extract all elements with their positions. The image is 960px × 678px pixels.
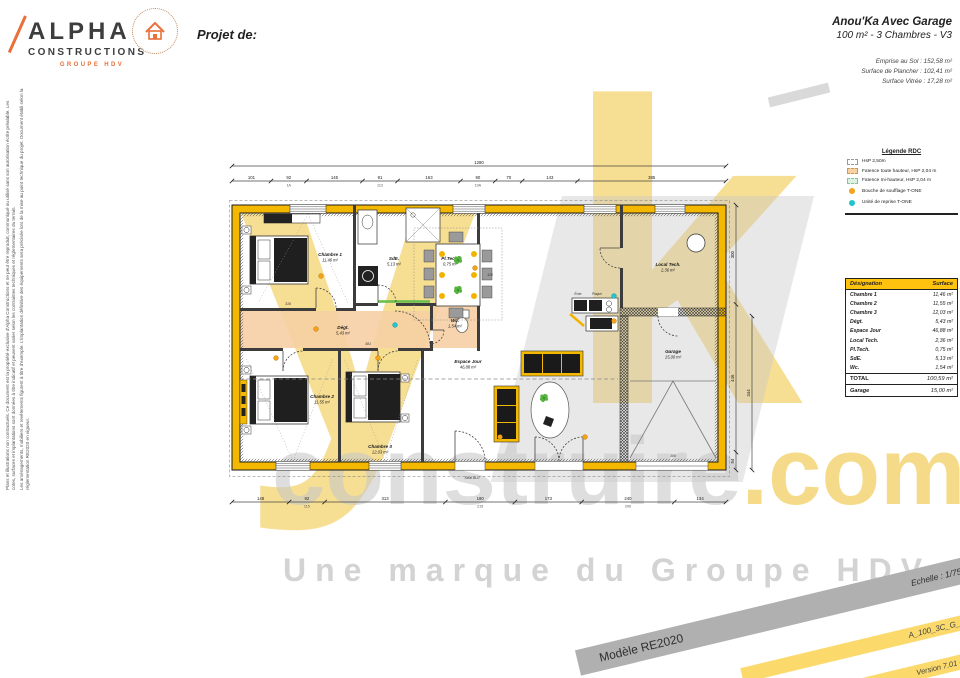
room-name: Chambre 2 bbox=[850, 301, 877, 307]
svg-text:54: 54 bbox=[730, 458, 735, 463]
table-row: Chambre 1 11,46 m² bbox=[846, 290, 957, 299]
svg-text:113: 113 bbox=[377, 184, 383, 188]
room-surface: 5,43 m² bbox=[935, 319, 953, 325]
svg-text:91: 91 bbox=[378, 175, 383, 180]
svg-text:Chambre 3: Chambre 3 bbox=[368, 444, 392, 449]
table-row: SdE. 5,13 m² bbox=[846, 354, 957, 363]
svg-text:Wc.: Wc. bbox=[451, 318, 459, 323]
surface-table: Désignation Surface Chambre 1 11,46 m² C… bbox=[845, 278, 958, 397]
surface-metrics: Emprise au Sol : 152,58 m²Surface de Pla… bbox=[832, 57, 952, 86]
svg-text:15,00 m²: 15,00 m² bbox=[665, 355, 682, 360]
watermark-tagline: Une marque du Groupe HDV bbox=[283, 552, 931, 589]
table-row: Chambre 3 12,03 m² bbox=[846, 308, 957, 317]
legend-item-label: Unité de reprise T-ONE bbox=[862, 200, 912, 205]
svg-text:300: 300 bbox=[730, 250, 735, 258]
svg-text:145: 145 bbox=[331, 175, 339, 180]
svg-text:143: 143 bbox=[546, 175, 554, 180]
svg-text:115: 115 bbox=[304, 505, 310, 509]
table-row: Dégt. 5,43 m² bbox=[846, 318, 957, 327]
svg-text:381: 381 bbox=[365, 342, 371, 346]
table-row: Local Tech. 2,36 m² bbox=[846, 336, 957, 345]
logo-slash-icon bbox=[8, 15, 27, 53]
svg-text:SdE.: SdE. bbox=[389, 256, 399, 261]
room-surface: 46,88 m² bbox=[933, 328, 953, 334]
svg-text:101: 101 bbox=[248, 175, 256, 180]
garage-value: 15,00 m² bbox=[931, 388, 953, 394]
table-row: Chambre 2 11,55 m² bbox=[846, 299, 957, 308]
project-label: Projet de: bbox=[197, 27, 257, 42]
svg-text:70: 70 bbox=[506, 175, 511, 180]
svg-text:200: 200 bbox=[625, 505, 631, 509]
legal-line-1: Plans et illustrations non contractuels.… bbox=[5, 88, 17, 490]
room-name: Dégt. bbox=[850, 319, 863, 325]
table-row: Wc. 1,54 m² bbox=[846, 364, 957, 373]
svg-text:446: 446 bbox=[730, 374, 735, 382]
svg-text:Chambre 1: Chambre 1 bbox=[318, 252, 342, 257]
svg-text:173: 173 bbox=[545, 496, 553, 501]
svg-text:46,88 m²: 46,88 m² bbox=[460, 365, 477, 370]
scale-label: Echelle : 1/75 bbox=[910, 566, 960, 588]
room-name: SdE. bbox=[850, 356, 862, 362]
svg-text:240: 240 bbox=[624, 496, 632, 501]
legend-item-label: Faïence toute hauteur, HsP 2,04 m bbox=[862, 169, 936, 174]
tiled-floors bbox=[240, 306, 477, 348]
surface-table-header-surface: Surface bbox=[932, 281, 953, 287]
svg-text:316: 316 bbox=[285, 302, 291, 306]
svg-text:215: 215 bbox=[477, 505, 483, 509]
svg-text:1280: 1280 bbox=[474, 160, 484, 165]
room-surface: 12,03 m² bbox=[933, 310, 953, 316]
svg-text:Chambre 2: Chambre 2 bbox=[310, 394, 334, 399]
surface-table-header: Désignation Surface bbox=[846, 279, 957, 290]
logo-stamp-icon bbox=[132, 8, 178, 54]
room-surface: 2,36 m² bbox=[935, 338, 953, 344]
logo-constructions-text: CONSTRUCTIONS bbox=[28, 47, 198, 58]
legend-swatch-icon bbox=[847, 187, 858, 195]
garage-separation-walls bbox=[620, 308, 726, 462]
svg-text:11,46 m²: 11,46 m² bbox=[322, 258, 338, 263]
floor-plan: 1280101921A145911131639010A7014338514892… bbox=[228, 148, 768, 523]
svg-text:Seuil ALU: Seuil ALU bbox=[465, 476, 481, 480]
faience-strip bbox=[378, 300, 430, 303]
room-surface: 0,75 m² bbox=[935, 347, 953, 353]
legend-item: Faïence mi-hauteur, HsP 2,04 m bbox=[847, 178, 956, 184]
table-row: Espace Jour 46,88 m² bbox=[846, 327, 957, 336]
table-row-total: TOTAL 100,59 m² bbox=[846, 373, 957, 385]
svg-text:5,43 m²: 5,43 m² bbox=[336, 331, 351, 336]
svg-text:344: 344 bbox=[746, 389, 751, 397]
svg-text:300: 300 bbox=[670, 454, 677, 458]
plan-reference: A_100_3C_G_V3 bbox=[907, 616, 960, 639]
svg-text:Local Tech.: Local Tech. bbox=[655, 262, 680, 267]
legend-item-label: Bouche de soufflage T-ONE bbox=[862, 189, 922, 194]
svg-text:Évier: Évier bbox=[574, 291, 582, 296]
logo-brand-line: ALPHA bbox=[28, 18, 198, 46]
legend-swatch-icon bbox=[847, 159, 858, 165]
plan-sheet: y k construire.com Une marque du Groupe … bbox=[0, 0, 960, 678]
garage-label: Garage bbox=[850, 388, 869, 394]
model-code: Modèle RE2020 bbox=[598, 631, 685, 665]
room-name: Chambre 3 bbox=[850, 310, 877, 316]
legend-box: Légende RDC HsP 2,50m Faïence toute haut… bbox=[845, 147, 958, 215]
svg-text:92: 92 bbox=[304, 496, 309, 501]
svg-text:134: 134 bbox=[697, 496, 705, 501]
legend-item-label: Faïence mi-hauteur, HsP 2,04 m bbox=[862, 178, 931, 183]
total-value: 100,59 m² bbox=[927, 376, 953, 382]
svg-text:5,13 m²: 5,13 m² bbox=[387, 262, 402, 267]
model-subtitle: 100 m² - 3 Chambres - V3 bbox=[832, 30, 952, 41]
svg-text:110: 110 bbox=[487, 273, 493, 277]
room-surface: 5,13 m² bbox=[935, 356, 953, 362]
svg-text:2,36 m²: 2,36 m² bbox=[660, 268, 676, 273]
floor-plan-svg: 1280101921A145911131639010A7014338514892… bbox=[228, 148, 768, 523]
svg-text:90: 90 bbox=[475, 175, 480, 180]
svg-text:1A: 1A bbox=[286, 184, 291, 188]
svg-text:Garage: Garage bbox=[665, 349, 681, 354]
plan-version: Version 7.01 - Mars 2023 bbox=[915, 649, 960, 677]
surface-metric-line: Emprise au Sol : 152,58 m² bbox=[832, 57, 952, 67]
title-block: Anou'Ka Avec Garage 100 m² - 3 Chambres … bbox=[832, 16, 952, 86]
legend-item: Unité de reprise T-ONE bbox=[847, 199, 956, 207]
model-title: Anou'Ka Avec Garage bbox=[832, 16, 952, 28]
logo-group-text: GROUPE HDV bbox=[28, 62, 156, 68]
legend-item-label: HsP 2,50m bbox=[862, 159, 886, 164]
svg-text:385: 385 bbox=[648, 175, 656, 180]
room-surface: 11,46 m² bbox=[933, 292, 953, 298]
surface-metric-line: Surface de Plancher : 102,41 m² bbox=[832, 67, 952, 77]
house-icon bbox=[142, 18, 168, 44]
surface-table-rows: Chambre 1 11,46 m² Chambre 2 11,55 m² Ch… bbox=[846, 290, 957, 373]
room-name: Espace Jour bbox=[850, 328, 881, 334]
logo-brand-text: ALPHA bbox=[28, 18, 131, 45]
legend-swatch-icon bbox=[847, 178, 858, 184]
svg-text:10A: 10A bbox=[475, 184, 482, 188]
company-logo: ALPHA CONSTRUCTIONS GROUPE HDV bbox=[28, 18, 198, 68]
garage-door-lines bbox=[630, 381, 716, 458]
legend-swatch-icon bbox=[847, 199, 858, 207]
total-label: TOTAL bbox=[850, 376, 869, 382]
room-surface: 11,55 m² bbox=[933, 301, 953, 307]
legend-title: Légende RDC bbox=[847, 149, 956, 155]
legal-fine-print: Plans et illustrations non contractuels.… bbox=[5, 88, 32, 490]
table-row-garage: Garage 15,00 m² bbox=[846, 384, 957, 396]
svg-text:180: 180 bbox=[477, 496, 485, 501]
legend-items: HsP 2,50m Faïence toute hauteur, HsP 2,0… bbox=[847, 159, 956, 207]
svg-text:163: 163 bbox=[425, 175, 433, 180]
legend-swatch-icon bbox=[847, 168, 858, 174]
watermark-gray-sliver bbox=[768, 83, 831, 108]
room-surface: 1,54 m² bbox=[935, 365, 953, 371]
watermark-com-text: .com bbox=[741, 418, 960, 525]
room-name: Chambre 1 bbox=[850, 292, 877, 298]
svg-text:Dégt.: Dégt. bbox=[337, 325, 348, 330]
svg-text:92: 92 bbox=[286, 175, 291, 180]
legend-item: HsP 2,50m bbox=[847, 159, 956, 165]
room-name: Wc. bbox=[850, 365, 859, 371]
table-row: Pl.Tech. 0,75 m² bbox=[846, 345, 957, 354]
svg-text:11,55 m²: 11,55 m² bbox=[314, 400, 330, 405]
surface-table-header-designation: Désignation bbox=[850, 281, 882, 287]
room-name: Local Tech. bbox=[850, 338, 878, 344]
footer-band-model: Modèle RE2020 Echelle : 1/75 bbox=[575, 550, 960, 676]
surface-metric-line: Surface Vitrée : 17,28 m² bbox=[832, 77, 952, 87]
svg-text:12,03 m²: 12,03 m² bbox=[372, 450, 389, 455]
legend-item: Faïence toute hauteur, HsP 2,04 m bbox=[847, 168, 956, 174]
room-name: Pl.Tech. bbox=[850, 347, 870, 353]
svg-text:Plaque: Plaque bbox=[592, 292, 602, 296]
svg-text:313: 313 bbox=[381, 496, 389, 501]
svg-text:1,54 m²: 1,54 m² bbox=[448, 324, 463, 329]
legend-item: Bouche de soufflage T-ONE bbox=[847, 187, 956, 195]
svg-text:Espace Jour: Espace Jour bbox=[454, 359, 482, 364]
legal-line-2: Les aménagements, mobiliers et revêtemen… bbox=[19, 88, 31, 490]
svg-text:148: 148 bbox=[257, 496, 265, 501]
